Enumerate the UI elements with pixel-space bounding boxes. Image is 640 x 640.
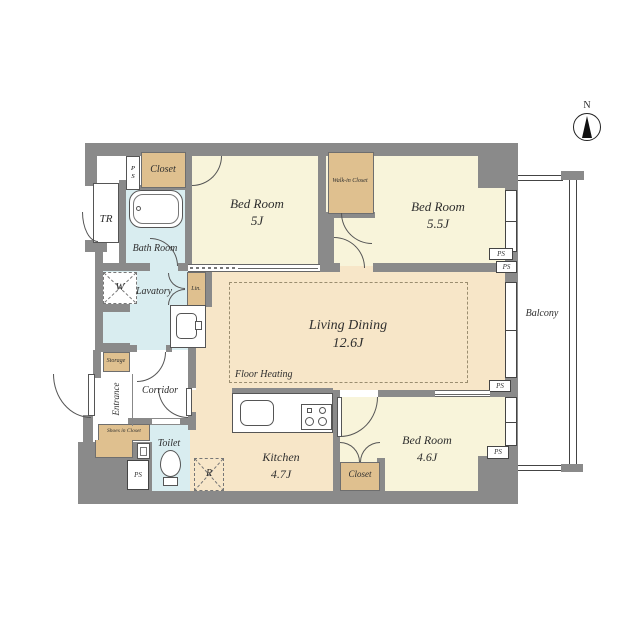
- wall-wic-lower: [326, 218, 334, 264]
- wall-left-entrance-bottom: [83, 415, 93, 447]
- balcony-railing: [569, 180, 577, 466]
- partition-track: [238, 268, 318, 269]
- bathtub-faucet-icon: [136, 206, 141, 211]
- sliding-partition-bedroom5j: [188, 264, 320, 272]
- window-mullion: [506, 221, 517, 222]
- bedroom-55j-area: 5.5J: [388, 217, 488, 231]
- wall-living-top-2: [373, 263, 508, 272]
- stove: [301, 404, 332, 430]
- hand-basin-bowl-icon: [140, 447, 147, 456]
- window-mullion: [506, 330, 517, 331]
- walk-in-closet-label: Walk-in Closet: [322, 178, 378, 185]
- shoes-in-closet-label: Shoes in Closet: [98, 428, 150, 434]
- toilet-bowl-icon: [160, 450, 181, 477]
- storage-label: Storage: [102, 358, 130, 365]
- stove-knob-icon: [307, 408, 312, 413]
- partition-dashes: [190, 267, 238, 269]
- entrance-door-arc: [53, 374, 91, 418]
- kitchen-area: 4.7J: [241, 468, 321, 481]
- ps-badge-2: PS: [496, 261, 517, 273]
- closet-bottom-label: Closet: [330, 470, 390, 480]
- ps-badge-4: PS: [487, 446, 509, 459]
- closet-top-label: Closet: [133, 164, 193, 175]
- wall-living-left-upper: [205, 268, 212, 307]
- wall-bath-lavatory-1: [97, 263, 150, 271]
- entrance-door-leaf: [88, 374, 95, 416]
- bedroom-46j-name: Bed Room: [377, 434, 477, 447]
- balcony-rail-bottom-cap: [561, 464, 583, 472]
- ps-badge-1: PS: [489, 248, 513, 260]
- ps-badge-5: PS: [127, 460, 149, 490]
- burner-icon-3: [319, 407, 326, 414]
- window-mullion: [506, 422, 517, 423]
- doorway-bedroom46j: [340, 390, 378, 397]
- kitchen-name: Kitchen: [241, 451, 321, 464]
- wall-bedroom5j-right: [318, 143, 326, 268]
- entrance-label: Entrance: [112, 369, 122, 429]
- bedroom-5j-name: Bed Room: [207, 197, 307, 211]
- window-bedroom55j: [505, 190, 517, 252]
- sliding-door-bedroom46j: [435, 390, 490, 397]
- bath-room-label: Bath Room: [115, 243, 195, 254]
- balcony-rail-top-cap: [561, 171, 584, 180]
- burner-icon-1: [305, 417, 314, 426]
- shoes-closet-box-b: [95, 440, 133, 458]
- wall-bath-lavatory-2: [178, 263, 188, 271]
- wall-left-mid-1: [95, 245, 103, 310]
- wall-lavatory-bottom-1: [97, 345, 137, 352]
- corridor-label: Corridor: [130, 385, 190, 396]
- doorway-toilet: [152, 419, 180, 424]
- linen-label: Lin.: [186, 286, 206, 293]
- entrance-step-line: [132, 374, 133, 426]
- wall-bottom: [95, 491, 518, 504]
- washbasin-tap-icon: [195, 321, 202, 330]
- refrigerator-label: R: [199, 468, 219, 479]
- slide-track: [435, 394, 490, 395]
- wall-corridor-right-1: [188, 348, 196, 388]
- burner-icon-2: [318, 417, 327, 426]
- ps-badge-3: PS: [489, 380, 511, 392]
- floor-heating-label: Floor Heating: [235, 369, 315, 380]
- bedroom-55j-name: Bed Room: [388, 200, 488, 214]
- toilet-tank-icon: [163, 477, 178, 486]
- wall-left-upper: [85, 143, 97, 186]
- wall-bedroom46j-top-1: [333, 390, 340, 397]
- toilet-label: Toilet: [149, 438, 189, 449]
- compass-needle-icon: [582, 116, 592, 138]
- floor-plan: PS PS PS PS PS PS: [0, 0, 640, 640]
- balcony-rail-bottom-connector: [518, 465, 563, 471]
- trunk-room-label: TR: [91, 213, 121, 225]
- bedroom-46j-area: 4.6J: [377, 451, 477, 464]
- bedroom-5j-area: 5J: [207, 214, 307, 228]
- lavatory-label: Lavatory: [114, 286, 194, 297]
- kitchen-sink-icon: [240, 400, 274, 426]
- balcony-label: Balcony: [512, 308, 572, 319]
- living-dining-area: 12.6J: [298, 336, 398, 351]
- window-living: [505, 282, 517, 378]
- bedroom46j-door-leaf: [337, 397, 342, 437]
- wall-bedroom46j-top-2: [378, 390, 435, 397]
- washbasin-icon: [176, 313, 197, 339]
- window-bedroom46j: [505, 397, 517, 446]
- compass-north-label: N: [577, 100, 597, 111]
- living-dining-name: Living Dining: [298, 318, 398, 333]
- balcony-rail-top-connector: [518, 175, 563, 181]
